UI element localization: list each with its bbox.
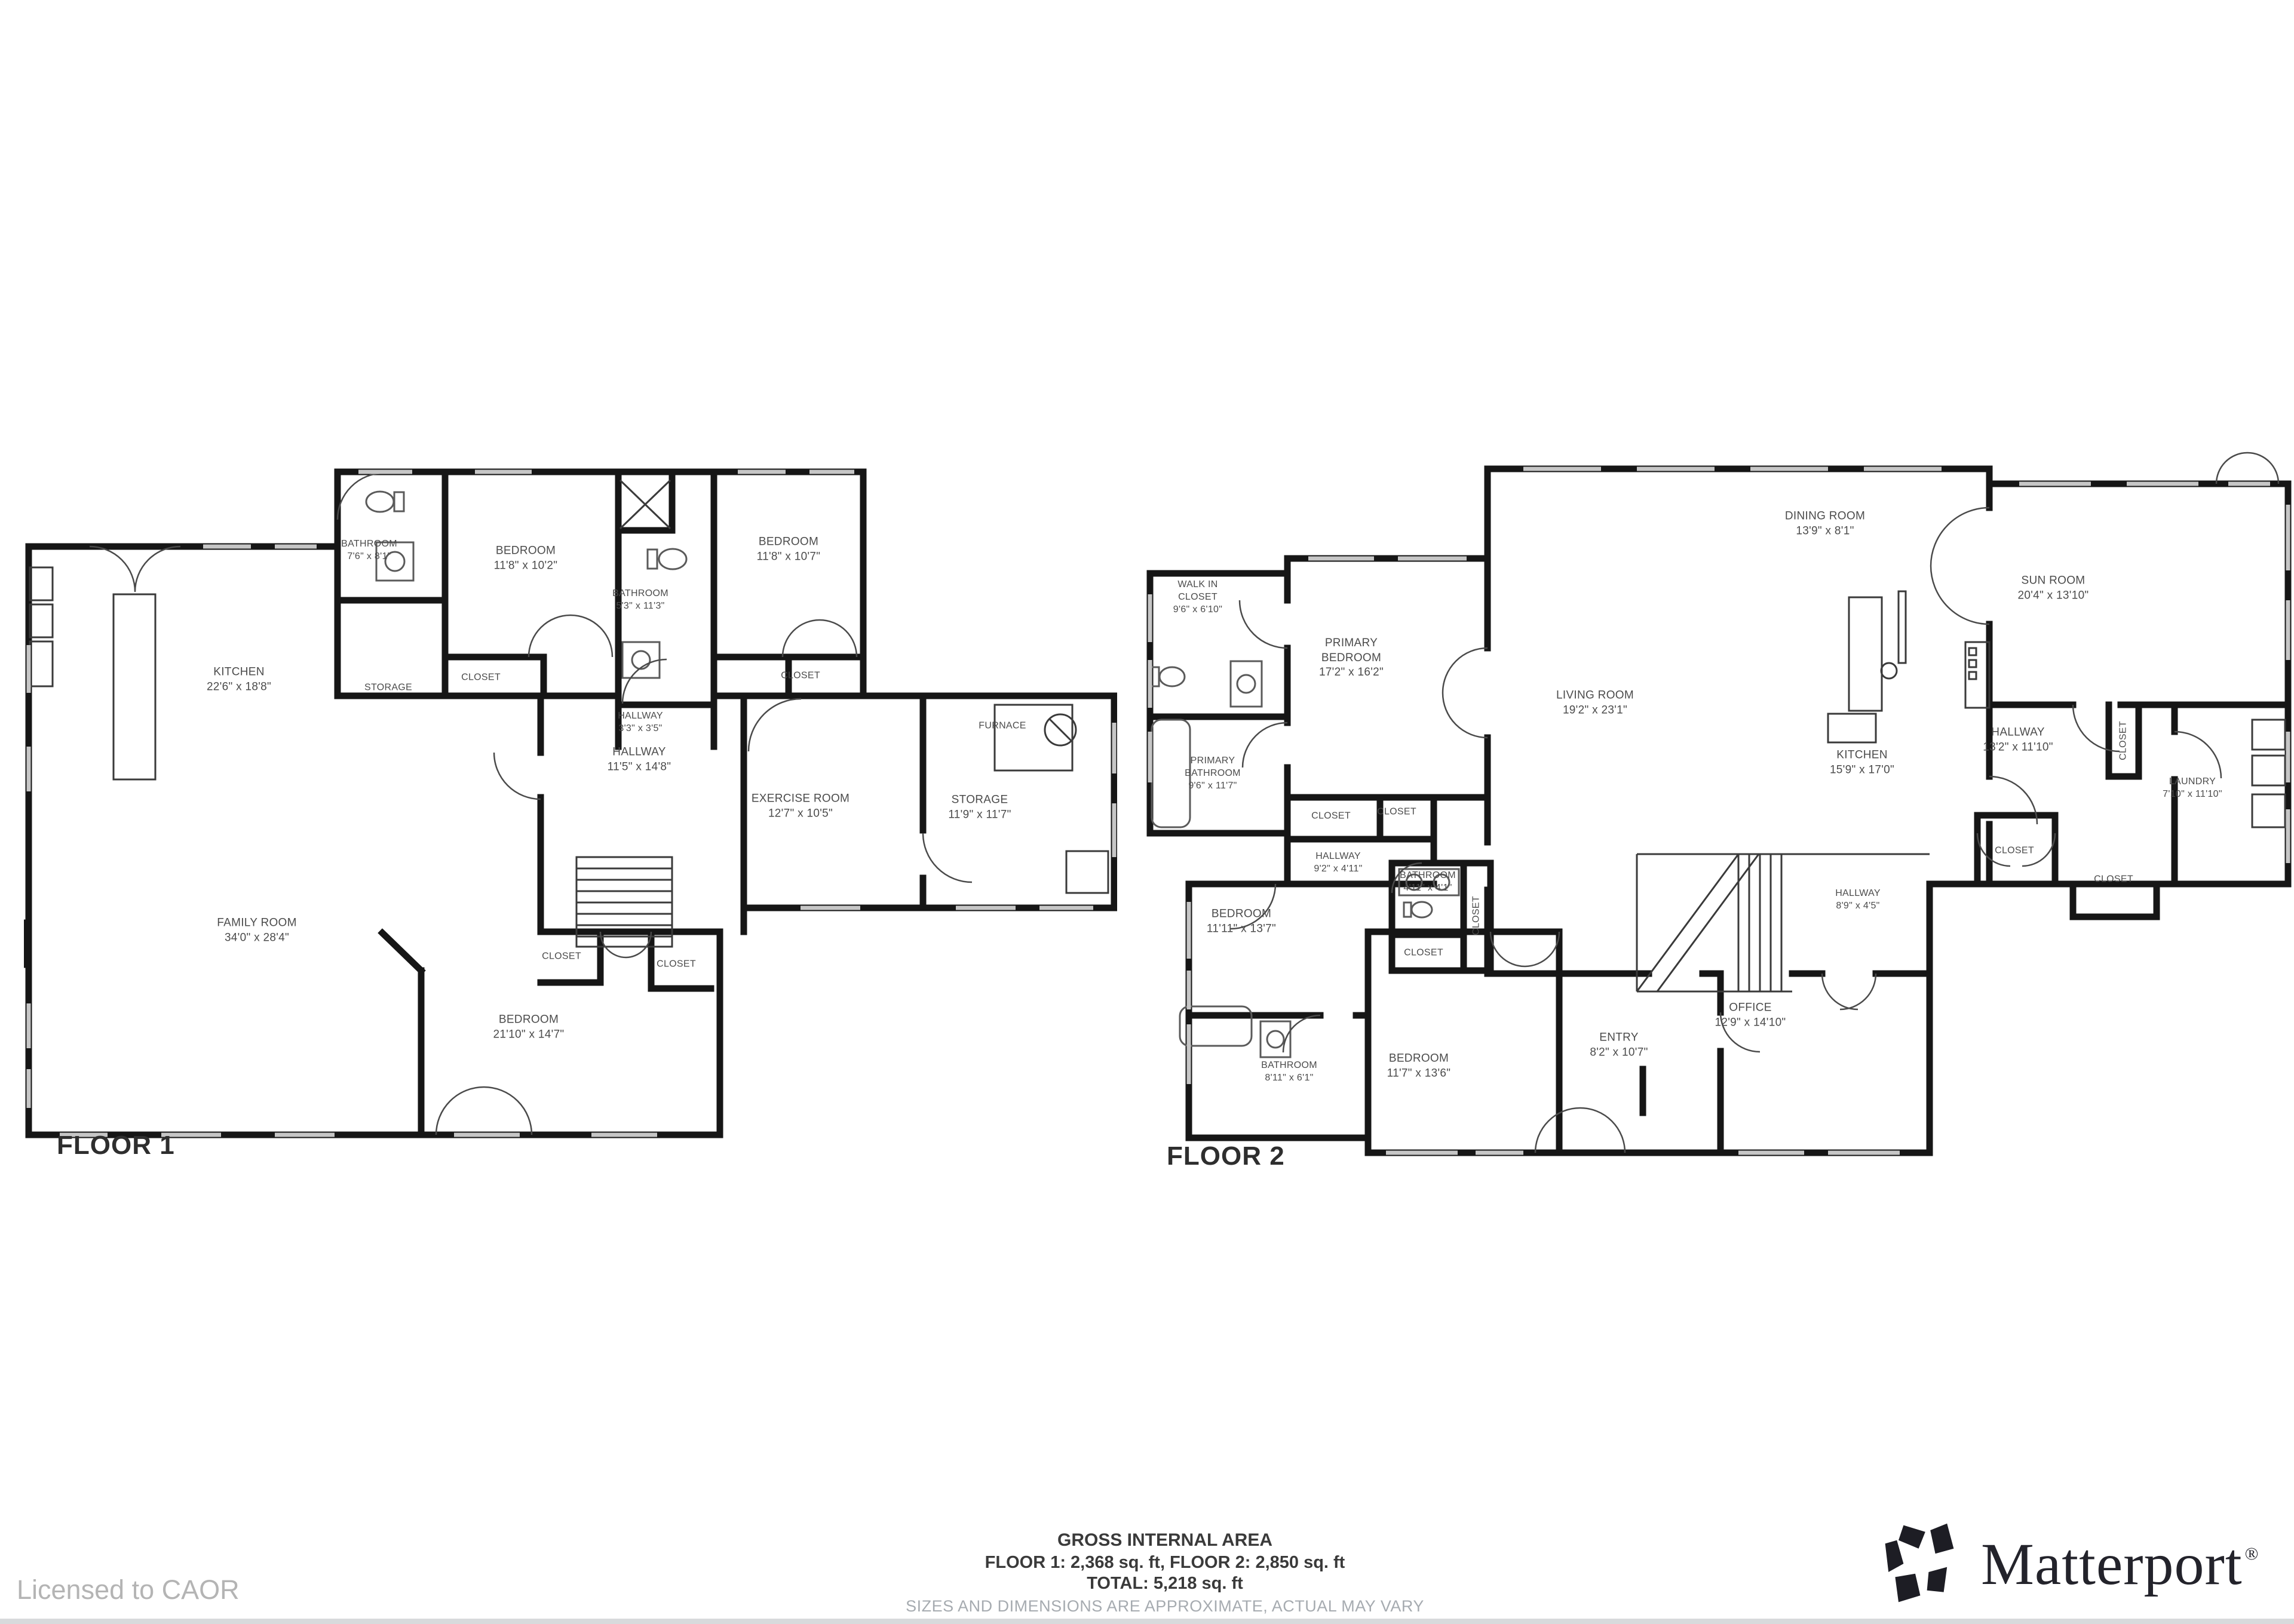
f2-room-label-hallway-2: HALLWAY13'2" x 11'10" [1983, 725, 2053, 754]
gross-area-footer: GROSS INTERNAL AREA FLOOR 1: 2,368 sq. f… [669, 1530, 1661, 1624]
f1-room-label-bedroom-2: BEDROOM11'8" x 10'7" [757, 535, 821, 564]
f1-room-label-exercise-room: EXERCISE ROOM12'7" x 10'5" [752, 791, 849, 821]
f2-room-label-dining-room: DINING ROOM13'9" x 8'1" [1785, 509, 1865, 538]
floor1-title: FLOOR 1 [57, 1131, 175, 1161]
f1-room-label-bedroom-3: BEDROOM21'10" x 14'7" [493, 1012, 565, 1042]
floorplan-page: BATHROOM7'6" x 8'1" BEDROOM11'8" x 10'2"… [0, 0, 2294, 1624]
f2-room-label-walk-in-closet: WALK IN CLOSET9'6" x 6'10" [1161, 579, 1234, 616]
f2-room-label-kitchen: KITCHEN15'9" x 17'0" [1830, 748, 1894, 777]
matterport-brand: Matterport® [1882, 1522, 2256, 1605]
page-bottom-edge [0, 1619, 2294, 1624]
matterport-wordmark: Matterport [1981, 1531, 2243, 1597]
f1-room-label-closet-4: CLOSET [657, 959, 696, 971]
total-area-line: TOTAL: 5,218 sq. ft [669, 1574, 1661, 1594]
f2-room-label-closet-7: CLOSET [2094, 874, 2133, 886]
f2-room-label-bedroom-1: BEDROOM11'11" x 13'7" [1207, 907, 1276, 936]
f1-room-label-storage-1: STORAGE [364, 682, 412, 695]
f2-room-label-office: OFFICE12'9" x 14'10" [1715, 1000, 1786, 1030]
f2-room-label-bathroom-small: BATHROOM4'11" x 4'1" [1400, 870, 1456, 895]
f1-room-label-closet-2: CLOSET [781, 670, 820, 683]
f2-room-label-hallway-1: HALLWAY9'2" x 4'11" [1314, 851, 1362, 876]
f1-room-label-hallway: HALLWAY11'5" x 14'8" [608, 745, 671, 774]
matterport-logo-icon [1882, 1522, 1965, 1605]
f1-room-label-kitchen: KITCHEN22'6" x 18'8" [207, 665, 271, 694]
f2-room-label-closet-2: CLOSET [1377, 806, 1416, 819]
f2-room-label-primary-bathroom: PRIMARY BATHROOM9'6" x 11'7" [1176, 755, 1249, 792]
f2-room-label-living-room: LIVING ROOM19'2" x 23'1" [1556, 688, 1634, 717]
f1-room-label-storage-2: STORAGE11'9" x 11'7" [948, 793, 1011, 822]
f2-room-label-hallway-3: HALLWAY8'9" x 4'5" [1835, 888, 1881, 913]
f2-room-label-laundry: LAUNDRY7'10" x 11'10" [2163, 776, 2222, 801]
f2-room-label-entry: ENTRY8'2" x 10'7" [1590, 1030, 1648, 1060]
registered-mark: ® [2245, 1544, 2259, 1564]
f2-room-label-closet-3: CLOSET [1404, 947, 1443, 960]
f2-room-label-closet-1: CLOSET [1311, 811, 1351, 823]
f2-room-label-bedroom-2: BEDROOM11'7" x 13'6" [1387, 1051, 1451, 1080]
f2-room-label-primary-bedroom: PRIMARY BEDROOM17'2" x 16'2" [1315, 636, 1388, 680]
floor-areas-line: FLOOR 1: 2,368 sq. ft, FLOOR 2: 2,850 sq… [669, 1553, 1661, 1573]
f1-room-label-furnace: FURNACE [979, 720, 1026, 733]
disclaimer-text: SIZES AND DIMENSIONS ARE APPROXIMATE, AC… [669, 1597, 1661, 1616]
f1-room-label-bathroom-2: BATHROOM5'3" x 11'3" [612, 588, 668, 613]
f2-room-label-sun-room: SUN ROOM20'4" x 13'10" [2018, 573, 2089, 603]
f1-room-label-bathroom-1: BATHROOM7'6" x 8'1" [341, 538, 397, 563]
f2-room-label-closet-5: CLOSET [2118, 721, 2130, 760]
gross-area-title: GROSS INTERNAL AREA [669, 1530, 1661, 1551]
f2-room-label-closet-4: CLOSET [1471, 896, 1483, 935]
f1-room-label-closet-1: CLOSET [461, 672, 501, 684]
f1-room-label-hallway-small: HALLWAY3'3" x 3'5" [618, 710, 663, 735]
f1-room-label-family-room: FAMILY ROOM34'0" x 28'4" [217, 916, 297, 945]
floor2-title: FLOOR 2 [1167, 1141, 1285, 1171]
f2-room-label-closet-6: CLOSET [1995, 845, 2034, 858]
license-text: Licensed to CAOR [17, 1574, 240, 1605]
f2-room-label-bathroom-2: BATHROOM8'11" x 6'1" [1261, 1060, 1317, 1085]
f1-room-label-bedroom-1: BEDROOM11'8" x 10'2" [494, 544, 558, 573]
f1-room-label-closet-3: CLOSET [542, 951, 581, 963]
